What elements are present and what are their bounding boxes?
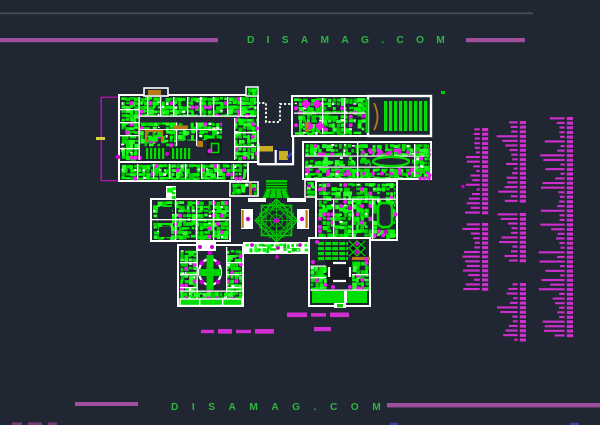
svg-text:DISAMAG.COM: DISAMAG.COM (247, 35, 457, 46)
svg-text:DISAMAG.COM: DISAMAG.COM (171, 402, 394, 413)
